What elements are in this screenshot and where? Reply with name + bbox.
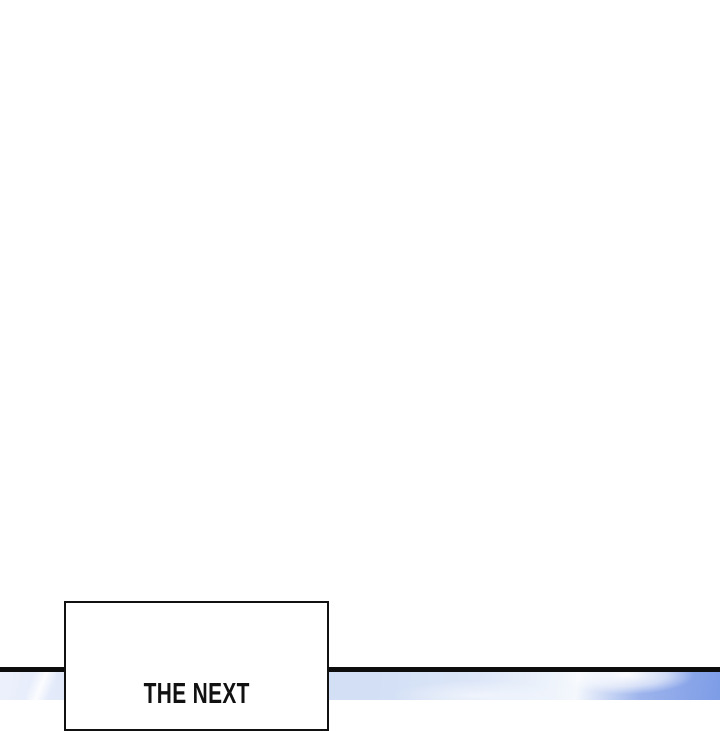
caption-text-label: THE NEXT — [143, 680, 249, 709]
caption-text: THE NEXT — [66, 680, 327, 709]
sky-light-streak — [26, 672, 56, 700]
comic-page: THE NEXT — [0, 0, 720, 700]
caption-box: THE NEXT — [64, 601, 329, 731]
